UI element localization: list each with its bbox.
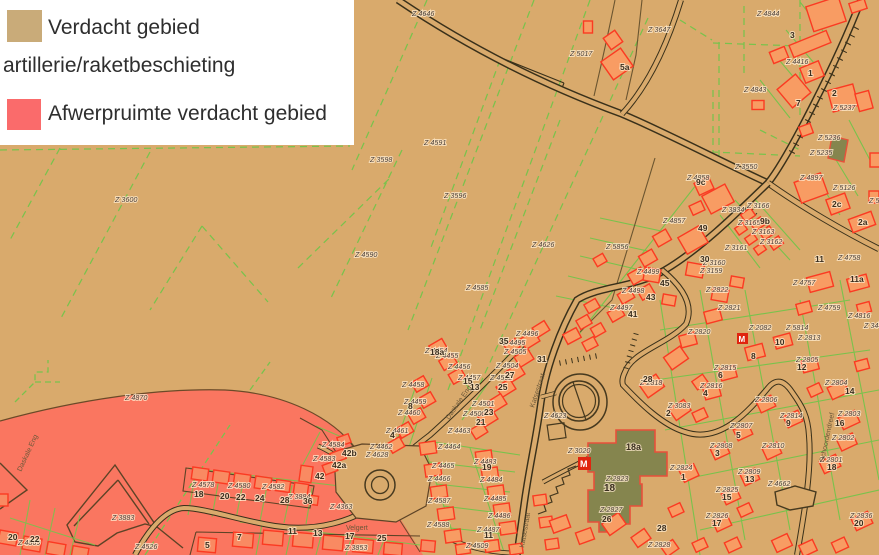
svg-text:Z 2082: Z 2082 <box>748 323 771 332</box>
svg-text:13: 13 <box>313 528 323 538</box>
svg-text:Z 4363: Z 4363 <box>329 502 352 511</box>
svg-text:M: M <box>580 459 588 469</box>
svg-text:Z 2806: Z 2806 <box>754 395 777 404</box>
svg-text:Z 5017: Z 5017 <box>569 49 593 58</box>
svg-text:Z 4585: Z 4585 <box>465 283 489 292</box>
svg-text:Z 4623: Z 4623 <box>543 411 566 420</box>
svg-text:11: 11 <box>288 526 297 536</box>
svg-text:Z 2815: Z 2815 <box>713 363 737 372</box>
svg-text:Z 3600: Z 3600 <box>114 195 137 204</box>
svg-text:Z 3883: Z 3883 <box>111 513 134 522</box>
svg-text:Z 4463: Z 4463 <box>447 426 470 435</box>
svg-text:30: 30 <box>700 254 710 264</box>
svg-text:Z 4578: Z 4578 <box>191 480 214 489</box>
svg-text:8: 8 <box>408 401 413 411</box>
svg-text:Z 3596: Z 3596 <box>443 191 466 200</box>
svg-text:5: 5 <box>736 430 741 440</box>
svg-text:Z 3441: Z 3441 <box>863 321 879 330</box>
svg-text:Z 2820: Z 2820 <box>687 327 710 336</box>
svg-text:7: 7 <box>796 98 801 108</box>
svg-text:Z 3550: Z 3550 <box>734 162 757 171</box>
svg-text:45: 45 <box>660 278 670 288</box>
svg-text:18a: 18a <box>626 442 642 452</box>
svg-text:31: 31 <box>537 354 547 364</box>
svg-text:8: 8 <box>751 351 756 361</box>
svg-text:Afwerpruimte verdacht gebied: Afwerpruimte verdacht gebied <box>48 102 327 125</box>
svg-text:Z 4504: Z 4504 <box>495 361 518 370</box>
svg-text:27: 27 <box>505 370 515 380</box>
svg-text:25: 25 <box>498 382 508 392</box>
svg-text:Z 5236: Z 5236 <box>817 133 840 142</box>
svg-text:14: 14 <box>845 386 855 396</box>
svg-text:2a: 2a <box>858 217 868 227</box>
svg-text:21: 21 <box>476 417 486 427</box>
svg-text:Z 4461: Z 4461 <box>385 426 408 435</box>
svg-text:Z 4465: Z 4465 <box>431 461 455 470</box>
svg-text:Z 4588: Z 4588 <box>426 520 449 529</box>
svg-text:4: 4 <box>390 430 395 440</box>
svg-text:Z 4466: Z 4466 <box>427 474 450 483</box>
svg-text:Z 4456: Z 4456 <box>447 362 470 371</box>
svg-text:Z 4844: Z 4844 <box>756 9 779 18</box>
svg-text:28: 28 <box>280 495 290 505</box>
svg-text:2c: 2c <box>832 199 842 209</box>
svg-text:Z 5235: Z 5235 <box>809 148 833 157</box>
svg-text:35: 35 <box>499 336 509 346</box>
svg-text:Z 5856: Z 5856 <box>605 242 628 251</box>
svg-text:Z 4646: Z 4646 <box>411 9 434 18</box>
svg-text:Z 2822: Z 2822 <box>705 285 728 294</box>
svg-text:Z 4526: Z 4526 <box>134 542 157 551</box>
svg-text:42a: 42a <box>332 460 346 470</box>
svg-text:23: 23 <box>484 407 494 417</box>
svg-text:Z 3020: Z 3020 <box>567 446 590 455</box>
svg-text:Z 3163: Z 3163 <box>751 227 774 236</box>
svg-text:Z 5: Z 5 <box>868 196 879 205</box>
svg-text:Z 3166: Z 3166 <box>746 201 769 210</box>
svg-text:Z 4759: Z 4759 <box>817 303 840 312</box>
svg-text:Z 4582: Z 4582 <box>261 482 284 491</box>
svg-text:1: 1 <box>681 472 686 482</box>
svg-text:Z 4857: Z 4857 <box>662 216 686 225</box>
svg-text:7: 7 <box>237 532 242 542</box>
svg-text:Z 4816: Z 4816 <box>847 311 870 320</box>
svg-text:22: 22 <box>236 492 246 502</box>
svg-text:26: 26 <box>602 514 612 524</box>
svg-text:Z 3647: Z 3647 <box>647 25 671 34</box>
svg-text:Z 2823: Z 2823 <box>605 474 628 483</box>
svg-text:Z 3853: Z 3853 <box>344 543 367 552</box>
svg-text:5a: 5a <box>620 62 630 72</box>
svg-text:Z 3598: Z 3598 <box>369 155 392 164</box>
svg-text:42: 42 <box>315 471 325 481</box>
svg-text:18: 18 <box>194 489 204 499</box>
svg-text:2: 2 <box>666 408 671 418</box>
svg-text:Z 4484: Z 4484 <box>479 475 502 484</box>
svg-text:artillerie/raketbeschieting: artillerie/raketbeschieting <box>3 54 235 77</box>
svg-text:Z 4496: Z 4496 <box>515 329 538 338</box>
svg-text:4: 4 <box>703 388 708 398</box>
svg-text:18: 18 <box>604 483 616 494</box>
svg-text:42b: 42b <box>342 448 357 458</box>
svg-text:Z 2827: Z 2827 <box>599 505 623 514</box>
svg-text:Z 3159: Z 3159 <box>699 266 722 275</box>
svg-text:Z 4416: Z 4416 <box>785 57 808 66</box>
svg-text:20: 20 <box>854 518 864 528</box>
svg-text:Z 5126: Z 5126 <box>832 183 855 192</box>
svg-text:Z 2813: Z 2813 <box>797 333 820 342</box>
svg-text:9b: 9b <box>760 216 770 226</box>
svg-text:18a: 18a <box>430 347 444 357</box>
svg-text:24: 24 <box>255 493 265 503</box>
svg-text:Z 3834: Z 3834 <box>721 205 744 214</box>
svg-text:Z 4628: Z 4628 <box>365 450 388 459</box>
svg-text:18: 18 <box>827 462 837 472</box>
svg-text:9: 9 <box>786 418 791 428</box>
svg-text:17: 17 <box>712 518 722 528</box>
svg-text:16: 16 <box>835 418 845 428</box>
svg-text:Z 2824: Z 2824 <box>669 463 692 472</box>
svg-text:Z 4485: Z 4485 <box>483 494 507 503</box>
svg-text:15: 15 <box>722 492 732 502</box>
svg-text:Z 4486: Z 4486 <box>487 511 510 520</box>
svg-text:Z 4590: Z 4590 <box>354 250 377 259</box>
svg-text:Velgert: Velgert <box>346 525 368 532</box>
svg-text:M: M <box>739 335 746 344</box>
svg-text:Z 3161: Z 3161 <box>724 243 747 252</box>
svg-text:1: 1 <box>808 68 813 78</box>
svg-text:Z 4591: Z 4591 <box>423 138 446 147</box>
svg-text:Z 2804: Z 2804 <box>824 378 847 387</box>
svg-text:Z 4458: Z 4458 <box>401 380 424 389</box>
svg-text:Z 4662: Z 4662 <box>767 479 790 488</box>
svg-text:Z 2803: Z 2803 <box>837 409 860 418</box>
svg-text:Z 4758: Z 4758 <box>837 253 860 262</box>
svg-text:Z 4587: Z 4587 <box>427 496 451 505</box>
svg-text:17: 17 <box>345 531 355 541</box>
svg-text:10: 10 <box>775 337 785 347</box>
svg-text:3: 3 <box>790 30 795 40</box>
svg-text:36: 36 <box>303 496 313 506</box>
svg-text:Z 2802: Z 2802 <box>831 433 854 442</box>
svg-text:Z 5237: Z 5237 <box>832 103 856 112</box>
svg-text:Z 4464: Z 4464 <box>437 442 460 451</box>
svg-text:2: 2 <box>832 88 837 98</box>
svg-text:Z 4584: Z 4584 <box>321 440 344 449</box>
svg-text:Z 5814: Z 5814 <box>785 323 808 332</box>
svg-text:20: 20 <box>220 491 230 501</box>
svg-text:19: 19 <box>482 462 492 472</box>
svg-text:49: 49 <box>698 223 708 233</box>
svg-text:9c: 9c <box>696 177 706 187</box>
svg-text:25: 25 <box>377 533 387 543</box>
svg-text:12: 12 <box>797 362 807 372</box>
svg-text:Z 4757: Z 4757 <box>792 278 816 287</box>
svg-text:Z 2821: Z 2821 <box>717 303 740 312</box>
svg-text:3: 3 <box>715 448 720 458</box>
svg-text:Z 4843: Z 4843 <box>743 85 766 94</box>
svg-text:11: 11 <box>484 530 493 540</box>
svg-text:Verdacht gebied: Verdacht gebied <box>48 16 200 39</box>
svg-text:Z 4498: Z 4498 <box>621 286 644 295</box>
svg-text:Z 4626: Z 4626 <box>531 240 554 249</box>
svg-text:Z 4499: Z 4499 <box>636 267 659 276</box>
svg-text:6: 6 <box>718 370 723 380</box>
svg-text:Z 2807: Z 2807 <box>729 421 753 430</box>
svg-text:Z 2810: Z 2810 <box>761 441 784 450</box>
svg-text:Z 2808: Z 2808 <box>709 441 732 450</box>
svg-text:11a: 11a <box>850 274 864 284</box>
svg-text:13: 13 <box>745 474 755 484</box>
svg-text:22: 22 <box>30 534 40 544</box>
svg-text:Z 4509: Z 4509 <box>465 541 488 550</box>
svg-text:20: 20 <box>8 532 18 542</box>
svg-text:Z 4505: Z 4505 <box>503 347 527 356</box>
svg-text:Z 3162: Z 3162 <box>759 237 782 246</box>
svg-text:Z 4459: Z 4459 <box>403 397 426 406</box>
svg-text:Z 3165: Z 3165 <box>737 218 761 227</box>
svg-text:Z 4870: Z 4870 <box>124 393 147 402</box>
svg-text:Z 4580: Z 4580 <box>227 481 250 490</box>
svg-text:5: 5 <box>205 540 210 550</box>
svg-text:Z 2828: Z 2828 <box>647 540 670 549</box>
svg-text:41: 41 <box>628 309 638 319</box>
svg-text:28: 28 <box>643 374 653 384</box>
svg-text:11: 11 <box>815 254 824 264</box>
svg-text:Z 4897: Z 4897 <box>799 173 823 182</box>
svg-text:28: 28 <box>657 523 667 533</box>
svg-text:43: 43 <box>646 292 656 302</box>
